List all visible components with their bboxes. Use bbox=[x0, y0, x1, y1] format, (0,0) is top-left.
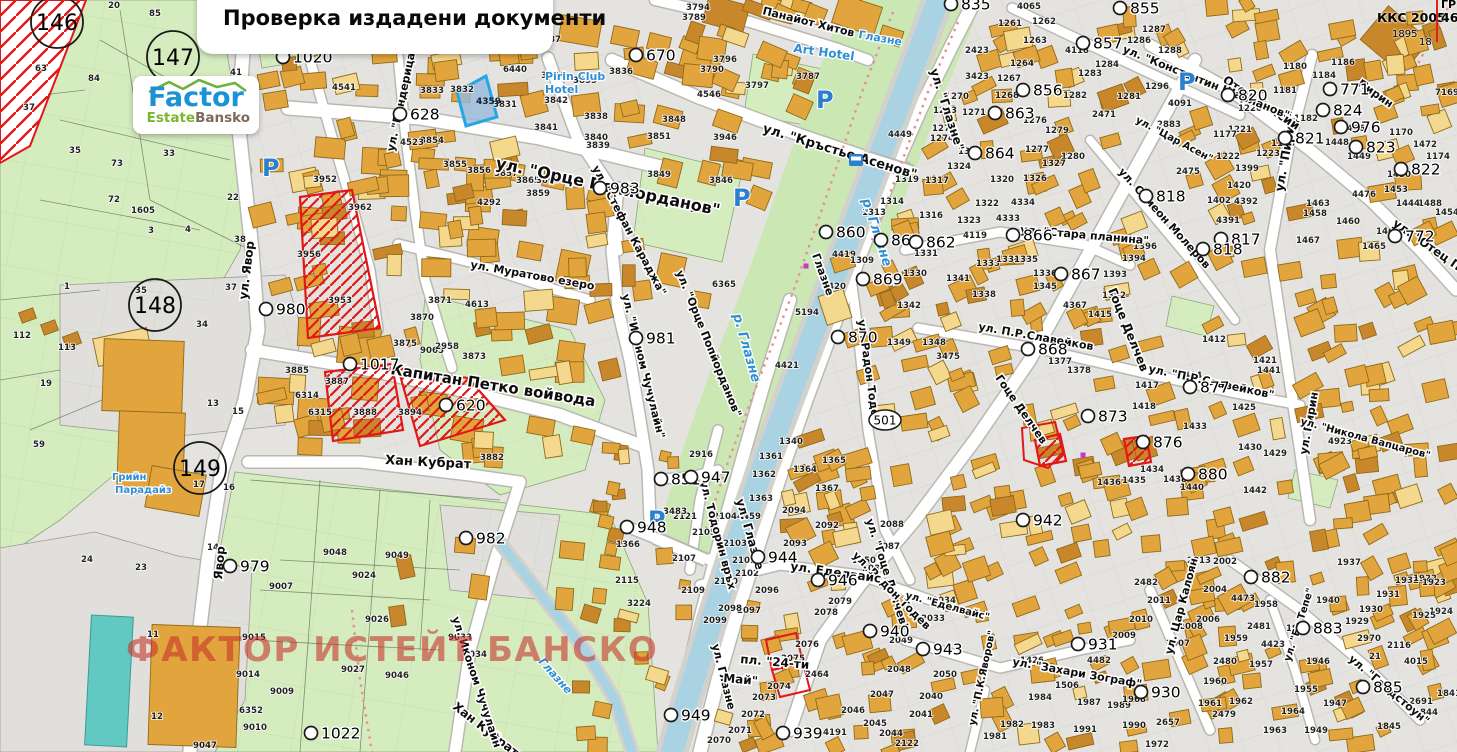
junction-marker: 979 bbox=[224, 558, 270, 576]
svg-text:2116: 2116 bbox=[1387, 641, 1411, 651]
svg-text:1957: 1957 bbox=[1249, 660, 1273, 670]
junction-marker: 823 bbox=[1350, 139, 1396, 157]
svg-text:9046: 9046 bbox=[385, 671, 409, 681]
corner-parcel-b: 18 bbox=[1419, 37, 1432, 48]
svg-text:1415: 1415 bbox=[1088, 310, 1112, 320]
junction-marker: 870 bbox=[832, 329, 878, 347]
svg-text:Pirin Club: Pirin Club bbox=[545, 70, 605, 83]
svg-text:1962: 1962 bbox=[1229, 697, 1253, 707]
svg-text:4334: 4334 bbox=[1011, 198, 1035, 208]
svg-text:73: 73 bbox=[111, 159, 123, 169]
svg-text:1316: 1316 bbox=[919, 211, 943, 221]
svg-text:35: 35 bbox=[69, 146, 81, 156]
svg-text:1963: 1963 bbox=[1263, 726, 1287, 736]
junction-marker: 670 bbox=[630, 47, 676, 65]
junction-marker: 772 bbox=[1389, 228, 1435, 246]
corner-label-gr: ГР bbox=[1441, 0, 1456, 11]
svg-text:948: 948 bbox=[637, 519, 667, 537]
logo-card: Factor EstateBansko bbox=[133, 76, 259, 134]
svg-text:1460: 1460 bbox=[1336, 217, 1360, 227]
svg-text:3: 3 bbox=[148, 226, 154, 236]
svg-text:1841: 1841 bbox=[1437, 689, 1457, 699]
svg-text:1418: 1418 bbox=[1132, 402, 1156, 412]
junction-marker: 885 bbox=[1357, 679, 1403, 697]
svg-text:Грийн: Грийн bbox=[112, 472, 147, 483]
logo-factor: Factor bbox=[148, 82, 244, 113]
junction-marker: 818 bbox=[1197, 241, 1243, 259]
svg-text:13: 13 bbox=[207, 399, 219, 409]
svg-text:1930: 1930 bbox=[1359, 605, 1383, 615]
svg-text:3832: 3832 bbox=[450, 85, 474, 95]
svg-text:4541: 4541 bbox=[332, 83, 356, 93]
svg-text:1326: 1326 bbox=[1023, 174, 1047, 184]
svg-text:1435: 1435 bbox=[1122, 476, 1146, 486]
svg-text:670: 670 bbox=[646, 47, 676, 65]
svg-text:3848: 3848 bbox=[662, 115, 686, 125]
svg-text:944: 944 bbox=[768, 549, 798, 567]
svg-text:1421: 1421 bbox=[1253, 356, 1277, 366]
junction-marker: 948 bbox=[621, 519, 667, 537]
svg-text:876: 876 bbox=[1153, 434, 1183, 452]
svg-text:3836: 3836 bbox=[609, 67, 633, 77]
corner-parcel-a: 1895 bbox=[1392, 29, 1417, 40]
svg-text:2072: 2072 bbox=[741, 710, 765, 720]
svg-text:1341: 1341 bbox=[946, 274, 970, 284]
svg-text:1960: 1960 bbox=[1203, 677, 1227, 687]
svg-text:1429: 1429 bbox=[1263, 449, 1287, 459]
svg-text:4449: 4449 bbox=[888, 130, 912, 140]
svg-text:818: 818 bbox=[1213, 241, 1243, 259]
svg-text:22: 22 bbox=[227, 193, 239, 203]
junction-marker: 882 bbox=[1245, 569, 1291, 587]
svg-text:818: 818 bbox=[1156, 188, 1186, 206]
svg-text:2078: 2078 bbox=[814, 608, 838, 618]
svg-text:1605: 1605 bbox=[131, 206, 155, 216]
junction-marker: 980 bbox=[260, 301, 306, 319]
svg-text:9010: 9010 bbox=[243, 723, 267, 733]
junction-marker: 982 bbox=[460, 530, 506, 548]
svg-text:882: 882 bbox=[1261, 569, 1291, 587]
svg-text:1412: 1412 bbox=[1202, 335, 1226, 345]
junction-marker: 877 bbox=[1184, 379, 1230, 397]
svg-text:2098: 2098 bbox=[718, 604, 742, 614]
svg-text:2088: 2088 bbox=[880, 520, 904, 530]
svg-text:1282: 1282 bbox=[1063, 91, 1087, 101]
svg-text:6440: 6440 bbox=[503, 65, 527, 75]
junction-marker: 822 bbox=[1395, 161, 1441, 179]
svg-text:2480: 2480 bbox=[1213, 657, 1237, 667]
parking-icon: P bbox=[1178, 68, 1196, 96]
svg-text:1845: 1845 bbox=[1377, 722, 1401, 732]
svg-text:1180: 1180 bbox=[1283, 62, 1307, 72]
parking-icon: P bbox=[733, 184, 751, 212]
svg-text:885: 885 bbox=[1373, 679, 1403, 697]
svg-text:4359: 4359 bbox=[476, 97, 501, 107]
svg-text:4065: 4065 bbox=[1017, 2, 1041, 12]
svg-text:1317: 1317 bbox=[925, 176, 949, 186]
svg-text:Парадайз: Парадайз bbox=[115, 485, 172, 496]
svg-text:1348: 1348 bbox=[922, 338, 946, 348]
svg-text:1170: 1170 bbox=[1389, 128, 1413, 138]
svg-text:2050: 2050 bbox=[933, 670, 957, 680]
svg-text:9047: 9047 bbox=[193, 741, 217, 751]
svg-text:9009: 9009 bbox=[270, 687, 294, 697]
parking-icon: P bbox=[816, 86, 834, 114]
svg-text:2002: 2002 bbox=[1213, 557, 1237, 567]
svg-text:3794: 3794 bbox=[686, 3, 710, 13]
svg-text:2115: 2115 bbox=[615, 576, 639, 586]
svg-text:942: 942 bbox=[1033, 512, 1063, 530]
svg-text:1362: 1362 bbox=[752, 470, 776, 480]
svg-text:1335: 1335 bbox=[1014, 255, 1038, 265]
poi-dot bbox=[1081, 453, 1086, 458]
junction-marker: 883 bbox=[1297, 620, 1343, 638]
svg-text:1277: 1277 bbox=[1025, 145, 1049, 155]
svg-text:1454: 1454 bbox=[1435, 208, 1457, 218]
svg-text:824: 824 bbox=[1333, 102, 1363, 120]
svg-text:2657: 2657 bbox=[1156, 718, 1180, 728]
svg-text:1320: 1320 bbox=[990, 175, 1014, 185]
svg-text:1937: 1937 bbox=[1337, 558, 1361, 568]
svg-text:1436: 1436 bbox=[1097, 478, 1121, 488]
svg-text:869: 869 bbox=[873, 271, 903, 289]
svg-text:864: 864 bbox=[985, 145, 1015, 163]
svg-text:1982: 1982 bbox=[1000, 720, 1024, 730]
svg-text:2958: 2958 bbox=[435, 342, 459, 352]
svg-text:1222: 1222 bbox=[1216, 152, 1240, 162]
svg-text:1186: 1186 bbox=[1331, 58, 1355, 68]
svg-text:1955: 1955 bbox=[1294, 685, 1318, 695]
svg-text:620: 620 bbox=[456, 397, 486, 415]
svg-text:1440: 1440 bbox=[1180, 483, 1204, 493]
junction-marker: 864 bbox=[969, 145, 1015, 163]
svg-text:1177: 1177 bbox=[1213, 130, 1237, 140]
svg-text:3888: 3888 bbox=[353, 408, 377, 418]
svg-text:6315: 6315 bbox=[308, 408, 332, 418]
svg-text:1959: 1959 bbox=[1224, 634, 1248, 644]
svg-text:1309: 1309 bbox=[850, 256, 874, 266]
svg-text:2096: 2096 bbox=[755, 586, 779, 596]
junction-marker: 866 bbox=[1007, 227, 1053, 245]
svg-text:1271: 1271 bbox=[962, 108, 986, 118]
svg-text:9049: 9049 bbox=[385, 551, 409, 561]
svg-text:3475: 3475 bbox=[936, 352, 960, 362]
svg-text:2107: 2107 bbox=[672, 554, 696, 564]
svg-text:1984: 1984 bbox=[1028, 693, 1052, 703]
junction-marker: 869 bbox=[857, 271, 903, 289]
svg-text:3841: 3841 bbox=[534, 123, 558, 133]
svg-text:3224: 3224 bbox=[627, 599, 651, 609]
svg-text:4423: 4423 bbox=[1261, 640, 1285, 650]
svg-text:1364: 1364 bbox=[793, 465, 817, 475]
svg-text:3838: 3838 bbox=[584, 112, 608, 122]
svg-text:1323: 1323 bbox=[957, 216, 981, 226]
svg-text:1263: 1263 bbox=[1023, 36, 1047, 46]
svg-text:1283: 1283 bbox=[1078, 69, 1102, 79]
svg-text:1506: 1506 bbox=[1055, 681, 1079, 691]
svg-text:860: 860 bbox=[836, 224, 866, 242]
svg-text:1: 1 bbox=[64, 282, 70, 292]
svg-text:1964: 1964 bbox=[1281, 707, 1305, 717]
svg-text:2471: 2471 bbox=[1092, 110, 1116, 120]
svg-text:2040: 2040 bbox=[919, 692, 943, 702]
svg-text:1287: 1287 bbox=[1142, 25, 1166, 35]
svg-text:1958: 1958 bbox=[1254, 600, 1278, 610]
svg-text:1925: 1925 bbox=[1412, 611, 1436, 621]
svg-text:63: 63 bbox=[35, 64, 47, 74]
svg-text:4: 4 bbox=[185, 225, 191, 235]
junction-marker: 946 bbox=[812, 572, 858, 590]
svg-text:2010: 2010 bbox=[1129, 615, 1153, 625]
svg-text:3856: 3856 bbox=[467, 166, 491, 176]
svg-text:1434: 1434 bbox=[1140, 465, 1164, 475]
svg-text:4367: 4367 bbox=[1063, 301, 1087, 311]
svg-text:9024: 9024 bbox=[352, 571, 376, 581]
svg-text:24: 24 bbox=[81, 555, 93, 565]
junction-marker: 880 bbox=[1182, 466, 1228, 484]
svg-text:3953: 3953 bbox=[328, 296, 352, 306]
svg-text:863: 863 bbox=[1005, 105, 1035, 123]
svg-text:2070: 2070 bbox=[707, 736, 731, 746]
svg-text:2970: 2970 bbox=[1357, 634, 1381, 644]
junction-marker: 981 bbox=[630, 330, 676, 348]
svg-text:1949: 1949 bbox=[1304, 726, 1328, 736]
svg-text:9026: 9026 bbox=[365, 615, 389, 625]
svg-text:1367: 1367 bbox=[815, 484, 839, 494]
svg-text:1931: 1931 bbox=[1376, 590, 1400, 600]
svg-text:34: 34 bbox=[196, 320, 208, 330]
junction-marker: 876 bbox=[1137, 434, 1183, 452]
svg-text:873: 873 bbox=[1098, 408, 1128, 426]
svg-text:4119: 4119 bbox=[963, 231, 987, 241]
svg-text:146: 146 bbox=[36, 11, 78, 36]
svg-text:9048: 9048 bbox=[323, 548, 347, 558]
svg-text:2479: 2479 bbox=[1212, 710, 1236, 720]
svg-text:1184: 1184 bbox=[1312, 71, 1336, 81]
svg-text:856: 856 bbox=[1033, 82, 1063, 100]
junction-marker: 983 bbox=[594, 180, 640, 198]
svg-text:1430: 1430 bbox=[1238, 443, 1262, 453]
svg-text:4546: 4546 bbox=[697, 90, 721, 100]
svg-text:2046: 2046 bbox=[841, 706, 865, 716]
svg-text:939: 939 bbox=[793, 725, 823, 743]
svg-text:982: 982 bbox=[476, 530, 506, 548]
svg-text:3887: 3887 bbox=[325, 377, 349, 387]
svg-text:2076: 2076 bbox=[795, 640, 819, 650]
svg-text:2482: 2482 bbox=[1134, 578, 1158, 588]
junction-marker: 939 bbox=[777, 725, 823, 743]
svg-text:4333: 4333 bbox=[996, 214, 1020, 224]
svg-text:3423: 3423 bbox=[965, 72, 989, 82]
svg-text:3796: 3796 bbox=[713, 55, 737, 65]
svg-text:1467: 1467 bbox=[1296, 236, 1320, 246]
svg-text:2004: 2004 bbox=[1203, 585, 1227, 595]
svg-text:877: 877 bbox=[1200, 379, 1230, 397]
svg-text:1929: 1929 bbox=[1345, 617, 1369, 627]
svg-text:3787: 3787 bbox=[796, 72, 820, 82]
svg-text:1458: 1458 bbox=[1303, 209, 1327, 219]
svg-text:2099: 2099 bbox=[703, 616, 727, 626]
svg-text:3839: 3839 bbox=[586, 141, 610, 151]
svg-text:979: 979 bbox=[240, 558, 270, 576]
svg-text:1342: 1342 bbox=[897, 301, 921, 311]
svg-text:3882: 3882 bbox=[480, 453, 504, 463]
svg-text:3851: 3851 bbox=[647, 132, 671, 142]
svg-text:12: 12 bbox=[151, 712, 163, 722]
svg-text:149: 149 bbox=[179, 457, 221, 482]
svg-text:3894: 3894 bbox=[398, 408, 422, 418]
junction-marker: 873 bbox=[1082, 408, 1128, 426]
svg-text:883: 883 bbox=[1313, 620, 1343, 638]
svg-text:2092: 2092 bbox=[815, 521, 839, 531]
svg-text:72: 72 bbox=[108, 195, 120, 205]
junction-marker: 868 bbox=[1022, 341, 1068, 359]
svg-text:1448: 1448 bbox=[1325, 138, 1349, 148]
svg-text:4392: 4392 bbox=[1234, 197, 1258, 207]
svg-text:1327: 1327 bbox=[1042, 159, 1066, 169]
svg-text:1472: 1472 bbox=[1413, 140, 1437, 150]
svg-text:6365: 6365 bbox=[712, 280, 736, 290]
svg-text:946: 946 bbox=[828, 572, 858, 590]
svg-text:59: 59 bbox=[33, 440, 45, 450]
svg-text:1488: 1488 bbox=[1418, 199, 1442, 209]
logo-sub: EstateBansko bbox=[147, 110, 250, 126]
svg-text:147: 147 bbox=[152, 46, 194, 71]
svg-text:628: 628 bbox=[410, 106, 440, 124]
svg-text:2916: 2916 bbox=[689, 450, 713, 460]
junction-marker: 856 bbox=[1017, 82, 1063, 100]
svg-text:855: 855 bbox=[1130, 0, 1160, 18]
svg-text:1433: 1433 bbox=[1183, 422, 1207, 432]
svg-text:1345: 1345 bbox=[1033, 282, 1057, 292]
svg-text:4613: 4613 bbox=[465, 300, 489, 310]
junction-marker: 944 bbox=[752, 549, 798, 567]
svg-text:822: 822 bbox=[1411, 161, 1441, 179]
svg-text:1361: 1361 bbox=[759, 452, 783, 462]
zone-ellipse: 501 bbox=[869, 410, 901, 430]
svg-text:3797: 3797 bbox=[745, 81, 769, 91]
svg-text:1444: 1444 bbox=[1396, 199, 1420, 209]
svg-text:949: 949 bbox=[681, 707, 711, 725]
svg-text:21: 21 bbox=[1369, 652, 1381, 662]
junction-marker: 628 bbox=[394, 106, 440, 124]
svg-text:9007: 9007 bbox=[269, 582, 293, 592]
svg-text:981: 981 bbox=[646, 330, 676, 348]
svg-text:3885: 3885 bbox=[285, 366, 309, 376]
watermark: ФАКТОР ИСТЕЙТ БАНСКО bbox=[126, 630, 658, 670]
svg-text:1441: 1441 bbox=[1257, 366, 1281, 376]
svg-text:4482: 4482 bbox=[1087, 656, 1111, 666]
svg-text:3842: 3842 bbox=[544, 96, 568, 106]
junction-marker: 824 bbox=[1317, 102, 1363, 120]
svg-text:3952: 3952 bbox=[313, 175, 337, 185]
svg-text:4191: 4191 bbox=[823, 728, 847, 738]
svg-text:1417: 1417 bbox=[1135, 381, 1159, 391]
svg-text:772: 772 bbox=[1405, 228, 1435, 246]
svg-text:2071: 2071 bbox=[728, 726, 752, 736]
svg-text:1399: 1399 bbox=[1235, 164, 1259, 174]
svg-text:1425: 1425 bbox=[1232, 403, 1256, 413]
svg-text:501: 501 bbox=[874, 414, 897, 428]
svg-text:867: 867 bbox=[1071, 266, 1101, 284]
svg-text:2475: 2475 bbox=[1176, 167, 1200, 177]
svg-text:1022: 1022 bbox=[321, 725, 360, 743]
svg-text:2093: 2093 bbox=[783, 539, 807, 549]
svg-text:1465: 1465 bbox=[1362, 242, 1386, 252]
svg-text:3790: 3790 bbox=[700, 65, 724, 75]
svg-text:1940: 1940 bbox=[1316, 596, 1340, 606]
junction-marker: 940 bbox=[864, 623, 910, 641]
svg-text:983: 983 bbox=[610, 180, 640, 198]
svg-text:821: 821 bbox=[1295, 130, 1325, 148]
svg-text:2048: 2048 bbox=[887, 665, 911, 675]
svg-text:2045: 2045 bbox=[863, 719, 887, 729]
svg-text:112: 112 bbox=[13, 331, 31, 341]
svg-text:148: 148 bbox=[134, 294, 176, 319]
svg-text:3789: 3789 bbox=[682, 13, 706, 23]
svg-text:16: 16 bbox=[223, 483, 235, 493]
svg-text:4523: 4523 bbox=[400, 138, 424, 148]
svg-text:1338: 1338 bbox=[972, 290, 996, 300]
svg-text:943: 943 bbox=[933, 641, 963, 659]
svg-text:3946: 3946 bbox=[713, 133, 737, 143]
svg-text:1223: 1223 bbox=[1256, 149, 1280, 159]
svg-text:3849: 3849 bbox=[647, 170, 671, 180]
svg-text:3956: 3956 bbox=[297, 250, 321, 260]
svg-text:2073: 2073 bbox=[752, 693, 776, 703]
map-sheet-number: 46 bbox=[1441, 10, 1457, 25]
svg-text:3859: 3859 bbox=[526, 189, 550, 199]
svg-text:6352: 6352 bbox=[239, 706, 263, 716]
svg-text:1366: 1366 bbox=[616, 540, 640, 550]
svg-text:1961: 1961 bbox=[1198, 699, 1222, 709]
junction-marker: 862 bbox=[910, 234, 956, 252]
junction-marker: 1022 bbox=[305, 725, 361, 743]
svg-text:1314: 1314 bbox=[880, 197, 904, 207]
svg-text:947: 947 bbox=[701, 469, 731, 487]
svg-text:4473: 4473 bbox=[1231, 594, 1255, 604]
svg-text:1279: 1279 bbox=[1045, 126, 1069, 136]
svg-text:4292: 4292 bbox=[477, 198, 501, 208]
junction-marker: 930 bbox=[1135, 684, 1181, 702]
svg-text:1981: 1981 bbox=[983, 732, 1007, 742]
svg-text:2122: 2122 bbox=[895, 739, 919, 749]
svg-text:4091: 4091 bbox=[1168, 99, 1192, 109]
junction-marker: 620 bbox=[440, 397, 486, 415]
svg-text:33: 33 bbox=[163, 149, 175, 159]
svg-text:1181: 1181 bbox=[1273, 86, 1297, 96]
junction-marker: 771 bbox=[1324, 81, 1370, 99]
svg-text:857: 857 bbox=[1093, 35, 1123, 53]
junction-marker: 931 bbox=[1072, 636, 1118, 654]
svg-text:3871: 3871 bbox=[428, 296, 452, 306]
svg-text:4391: 4391 bbox=[1216, 216, 1240, 226]
svg-text:2047: 2047 bbox=[870, 690, 894, 700]
junction-marker: 867 bbox=[1055, 266, 1101, 284]
junction-marker: 860 bbox=[820, 224, 866, 242]
svg-text:3870: 3870 bbox=[410, 313, 434, 323]
svg-text:1990: 1990 bbox=[1122, 721, 1146, 731]
junction-marker: 820 bbox=[1222, 87, 1268, 105]
junction-marker: 976 bbox=[1335, 119, 1381, 137]
svg-text:3483: 3483 bbox=[663, 507, 687, 517]
junction-marker: 855 bbox=[1114, 0, 1160, 18]
map-viewport[interactable]: 2085638437357372334122160534381121131959… bbox=[0, 0, 1457, 752]
svg-text:1378: 1378 bbox=[1067, 366, 1091, 376]
svg-text:4015: 4015 bbox=[1404, 657, 1428, 667]
svg-text:870: 870 bbox=[848, 329, 878, 347]
poi-dot bbox=[804, 264, 809, 269]
